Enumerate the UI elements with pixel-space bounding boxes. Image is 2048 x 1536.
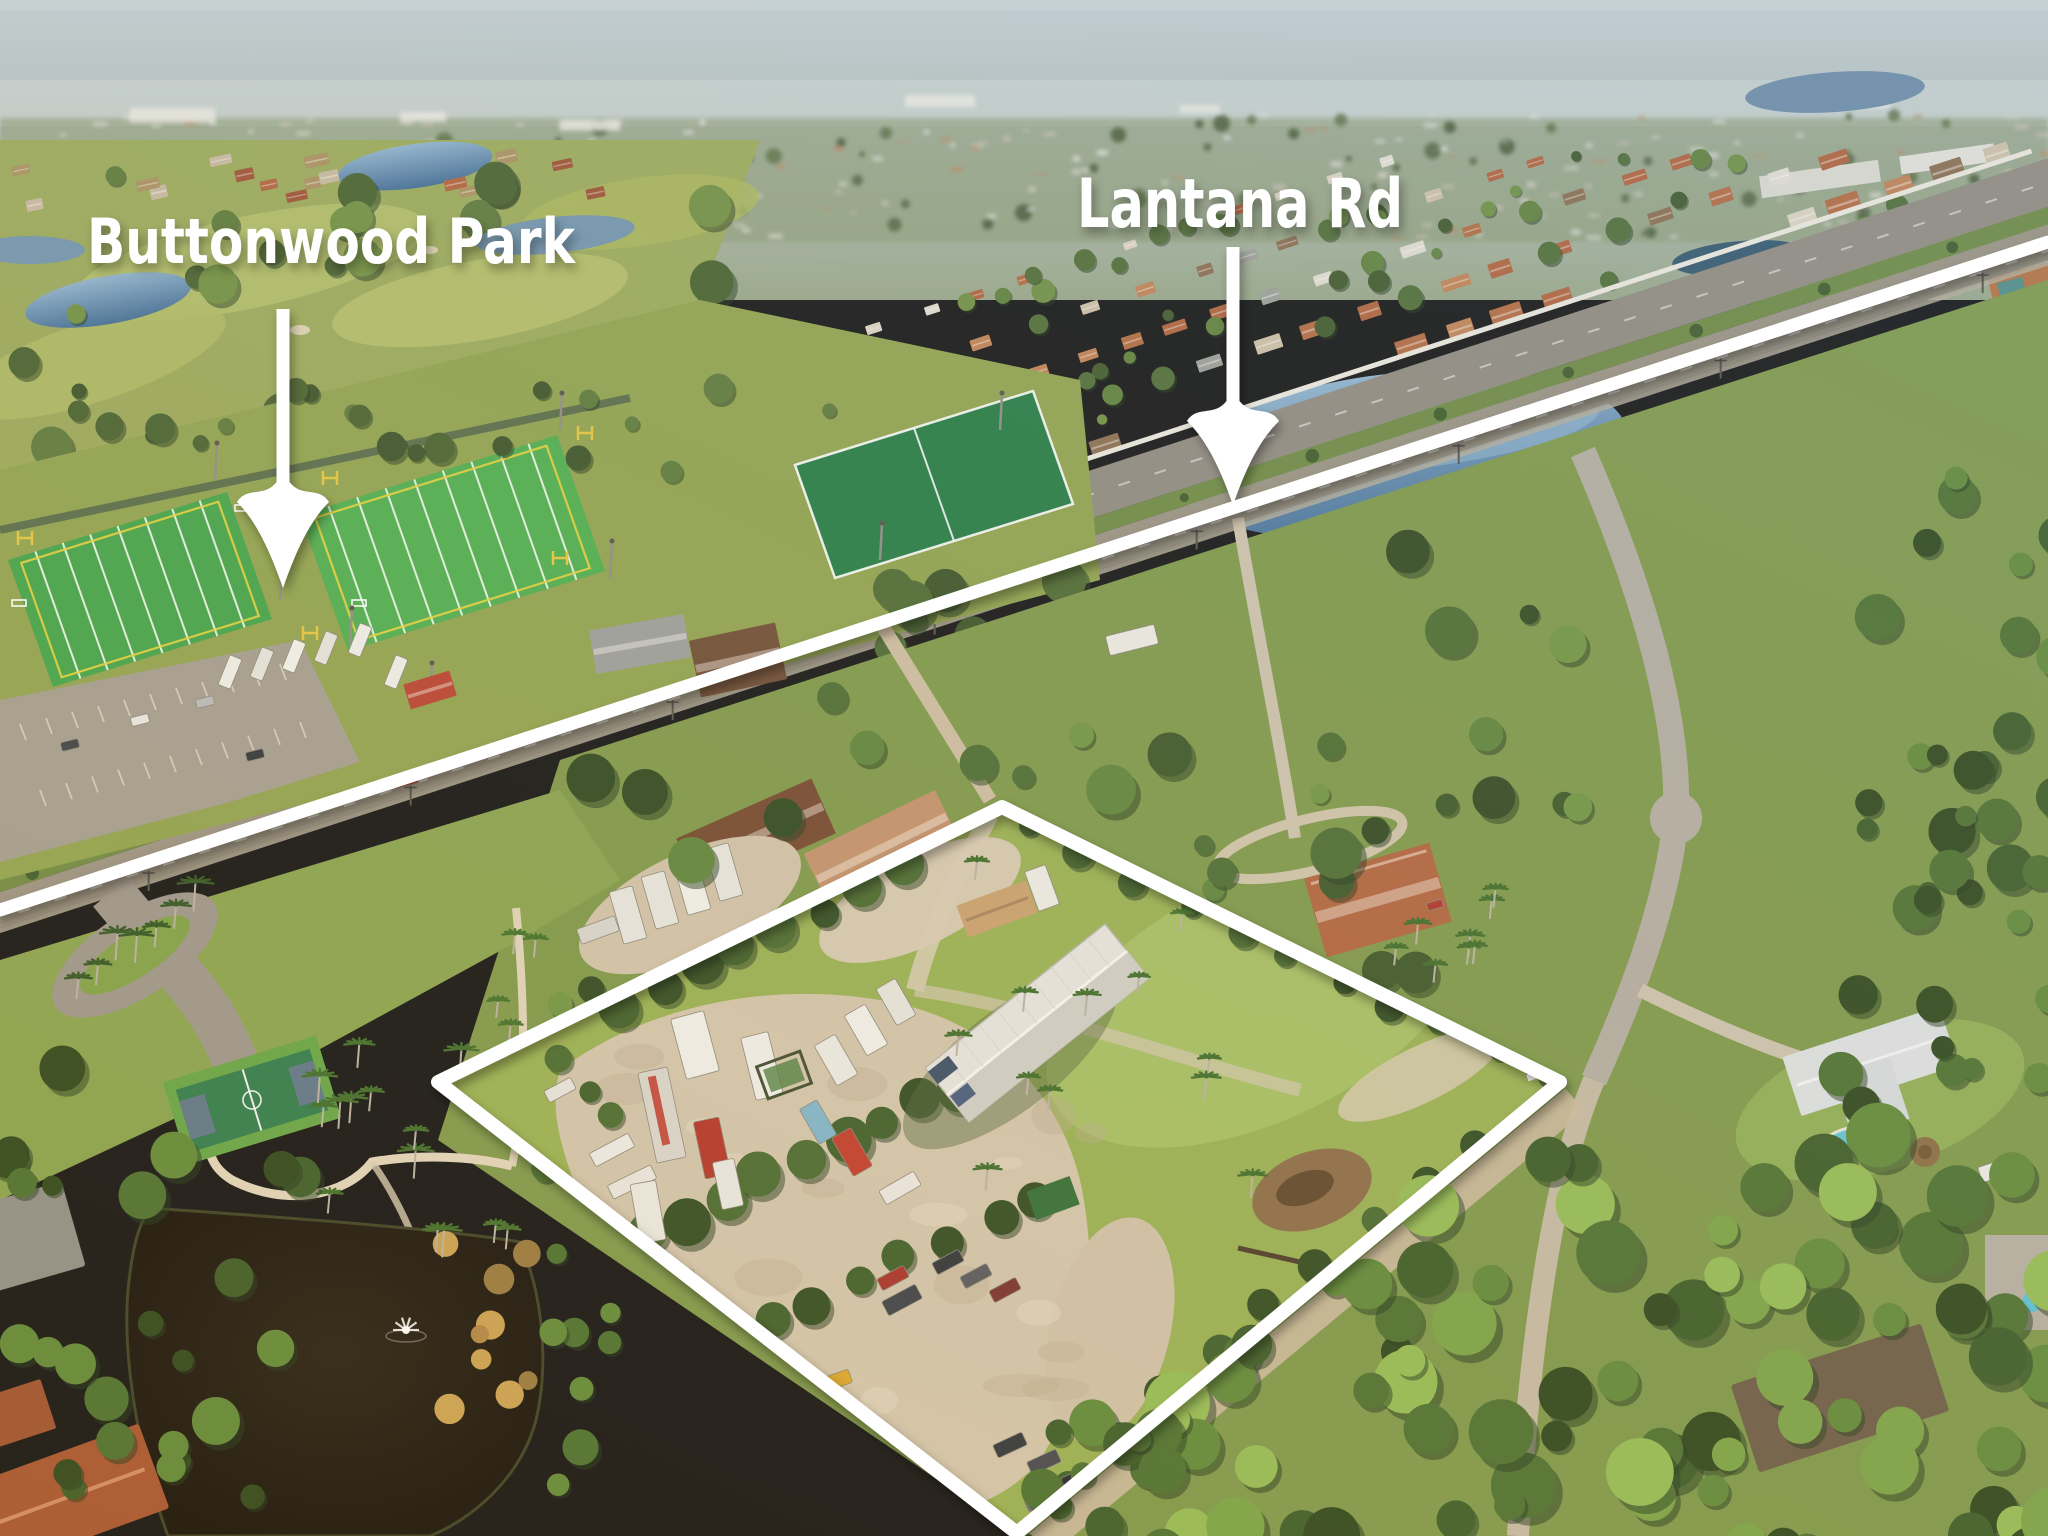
aerial-photo: Buttonwood Park Lantana Rd xyxy=(0,0,2048,1536)
road-label: Lantana Rd xyxy=(1077,165,1403,244)
park-label: Buttonwood Park xyxy=(87,205,576,278)
aerial-photo-svg: Buttonwood Park Lantana Rd xyxy=(0,0,2048,1536)
